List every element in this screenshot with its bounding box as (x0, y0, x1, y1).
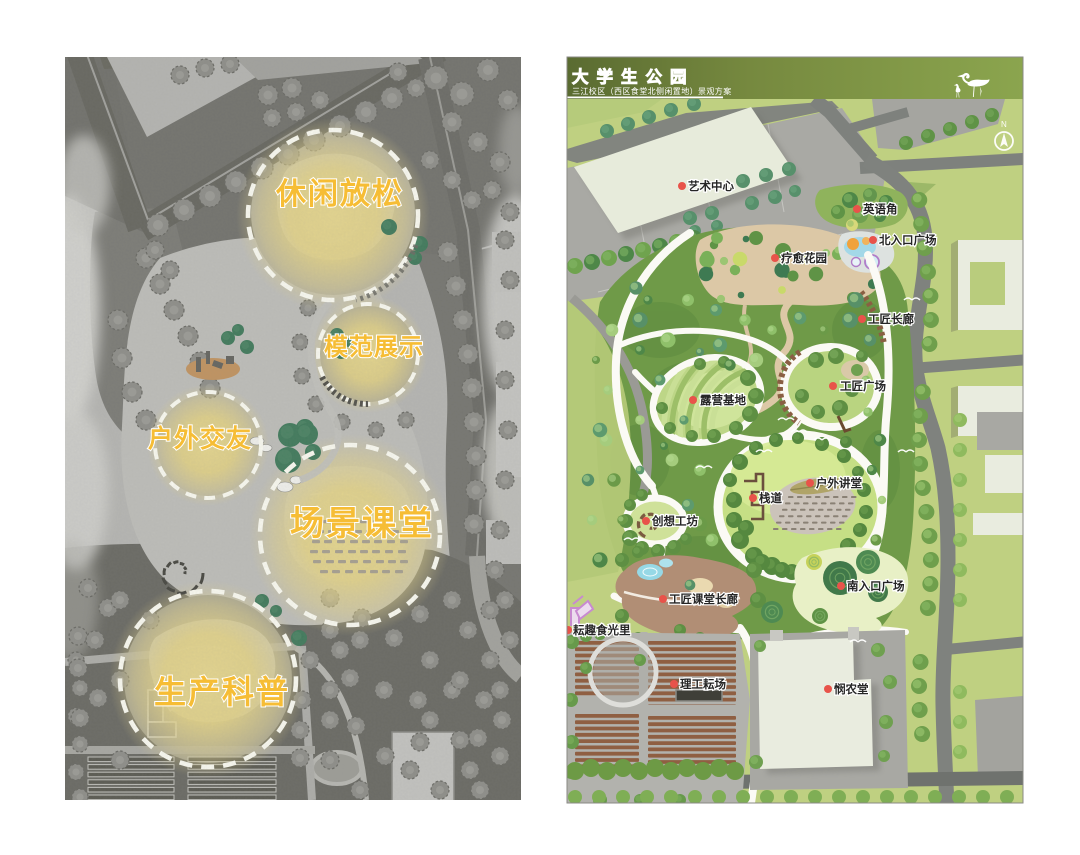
svg-text:工匠广场: 工匠广场 (840, 379, 886, 393)
svg-text:休闲放松: 休闲放松 (275, 178, 404, 211)
svg-text:模范展示: 模范展示 (324, 334, 424, 361)
svg-text:大学生公园: 大学生公园 (572, 67, 695, 87)
svg-text:北入口广场: 北入口广场 (879, 233, 937, 247)
svg-text:理工耘场: 理工耘场 (680, 677, 726, 691)
svg-text:露营基地: 露营基地 (700, 393, 746, 407)
svg-text:创想工坊: 创想工坊 (651, 514, 698, 528)
svg-text:英语角: 英语角 (862, 202, 898, 216)
svg-text:疗愈花园: 疗愈花园 (781, 251, 827, 265)
svg-text:耘趣食光里: 耘趣食光里 (573, 623, 631, 637)
svg-text:场景课堂: 场景课堂 (290, 505, 434, 543)
svg-text:艺术中心: 艺术中心 (688, 179, 734, 193)
svg-text:栈道: 栈道 (759, 491, 782, 505)
svg-text:N: N (1001, 120, 1007, 129)
svg-text:工匠长廊: 工匠长廊 (868, 312, 914, 326)
svg-text:生产科普: 生产科普 (154, 674, 290, 710)
svg-text:南入口广场: 南入口广场 (847, 579, 905, 593)
svg-text:悯农堂: 悯农堂 (834, 682, 869, 696)
svg-text:户外讲堂: 户外讲堂 (816, 476, 862, 490)
svg-text:工匠课堂长廊: 工匠课堂长廊 (669, 592, 738, 606)
svg-text:户外交友: 户外交友 (148, 424, 252, 453)
svg-text:三江校区（西区食堂北侧闲置地）景观方案: 三江校区（西区食堂北侧闲置地）景观方案 (572, 86, 732, 96)
